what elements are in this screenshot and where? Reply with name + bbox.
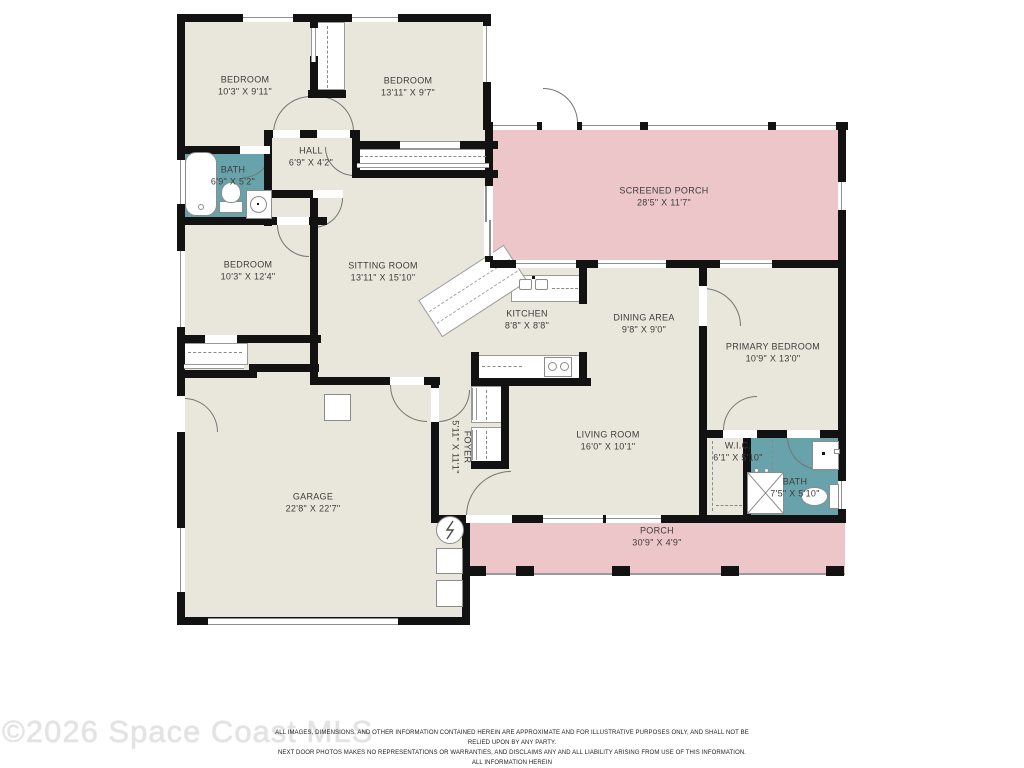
door-opening bbox=[699, 286, 707, 326]
room-dims: 28'5" X 11'7" bbox=[619, 197, 708, 209]
shower-knob-icon bbox=[754, 468, 759, 473]
door-arc bbox=[543, 88, 578, 123]
door-opening bbox=[177, 396, 185, 432]
door-opening bbox=[317, 130, 350, 138]
wall bbox=[310, 14, 318, 28]
appliance-fixture bbox=[436, 580, 463, 607]
window bbox=[720, 260, 772, 268]
room-dims: 5'11" X 11'1" bbox=[449, 420, 461, 473]
kitchen-sink-fixture bbox=[535, 279, 548, 290]
faucet-icon bbox=[834, 449, 840, 454]
disclaimer-text: ALL IMAGES, DIMENSIONS, AND OTHER INFORM… bbox=[272, 729, 752, 768]
wall bbox=[352, 170, 498, 178]
room-label-screened-porch: SCREENED PORCH 28'5" X 11'7" bbox=[619, 185, 708, 208]
closet-rod-line bbox=[552, 288, 578, 289]
room-label-kitchen: KITCHEN 8'8" X 8'8" bbox=[505, 308, 549, 331]
closet-rod-line bbox=[188, 352, 242, 353]
porch-pillar bbox=[516, 566, 534, 576]
room-label-foyer: FOYER 5'11" X 11'1" bbox=[449, 420, 472, 473]
sink-drain-icon bbox=[822, 452, 825, 455]
window bbox=[177, 160, 185, 204]
floor-plan-page: BEDROOM 10'3" X 9'11" BEDROOM 13'11" X 9… bbox=[0, 0, 1024, 768]
window bbox=[177, 528, 185, 592]
porch-pillar bbox=[826, 566, 844, 576]
sliding-door bbox=[484, 186, 493, 256]
room-label-wic: W.I.C. 6'1" X 5'10" bbox=[713, 440, 762, 463]
floor-plan: BEDROOM 10'3" X 9'11" BEDROOM 13'11" X 9… bbox=[0, 0, 1024, 768]
room-dims: 7'5" X 5'10" bbox=[770, 488, 819, 500]
closet-door-front bbox=[184, 364, 244, 369]
room-dims: 10'3" X 9'11" bbox=[218, 86, 272, 98]
wall bbox=[501, 386, 509, 468]
room-name: HALL bbox=[289, 145, 333, 157]
kitchen-sink-fixture bbox=[519, 279, 532, 290]
door-opening bbox=[431, 388, 439, 422]
appliance-fixture bbox=[436, 548, 463, 574]
room-dims: 13'11" X 15'10" bbox=[348, 272, 418, 284]
wall bbox=[177, 14, 491, 22]
door-opening bbox=[240, 146, 270, 154]
closet-rod-line bbox=[486, 431, 487, 459]
room-label-primary-bedroom: PRIMARY BEDROOM 10'9" X 13'0" bbox=[726, 341, 820, 364]
disclaimer-line: NEXT DOOR PHOTOS MAKES NO REPRESENTATION… bbox=[272, 749, 752, 768]
room-dims: 8'8" X 8'8" bbox=[505, 320, 549, 332]
porch-pillar bbox=[612, 566, 630, 576]
sink-drain-icon bbox=[257, 203, 259, 205]
window bbox=[543, 515, 603, 523]
window bbox=[776, 122, 836, 130]
closet-rod-line bbox=[772, 440, 773, 470]
room-label-bath-1: BATH 6'9" X 5'2" bbox=[211, 164, 255, 187]
door-opening bbox=[466, 515, 512, 523]
shower-knob-icon bbox=[764, 468, 769, 473]
room-dims: 22'8" X 22'7" bbox=[286, 503, 341, 515]
room-dims: 30'9" X 4'9" bbox=[632, 537, 681, 549]
room-dims: 6'9" X 5'2" bbox=[211, 176, 255, 188]
door-opening bbox=[723, 430, 757, 438]
closet-door-front bbox=[400, 141, 460, 149]
closet-rod-line bbox=[482, 366, 522, 367]
room-name: LIVING ROOM bbox=[576, 429, 639, 441]
room-label-bath-2: BATH 7'5" X 5'10" bbox=[770, 476, 819, 499]
door-opening bbox=[205, 335, 237, 343]
room-label-dining-area: DINING AREA 9'8" X 9'0" bbox=[613, 312, 674, 335]
stove-burner-icon bbox=[560, 362, 569, 371]
stove-burner-icon bbox=[548, 362, 557, 371]
room-dims: 16'0" X 10'1" bbox=[576, 441, 639, 453]
wall bbox=[249, 364, 319, 372]
wall bbox=[579, 352, 587, 386]
porch-pillar bbox=[468, 566, 486, 576]
room-name: GARAGE bbox=[286, 491, 341, 503]
closet-door-front bbox=[472, 388, 477, 420]
room-label-bedroom-1: BEDROOM 10'3" X 9'11" bbox=[218, 74, 272, 97]
water-heater-bolt-icon bbox=[437, 517, 463, 543]
room-dims: 6'1" X 5'10" bbox=[713, 452, 762, 464]
window bbox=[243, 14, 293, 22]
water-heater-fixture bbox=[436, 516, 464, 544]
wall bbox=[268, 190, 316, 198]
faucet-icon bbox=[532, 276, 535, 279]
room-dims: 6'9" X 4'2" bbox=[289, 157, 333, 169]
closet-rod-line bbox=[360, 156, 486, 157]
window bbox=[177, 251, 185, 327]
room-name: KITCHEN bbox=[505, 308, 549, 320]
bathtub-drain-icon bbox=[198, 204, 204, 210]
wall bbox=[308, 90, 346, 98]
window bbox=[606, 515, 661, 523]
door-opening bbox=[390, 377, 424, 385]
wall bbox=[310, 190, 318, 385]
closet-door-front bbox=[311, 28, 316, 62]
window bbox=[516, 260, 576, 268]
closet-door-front bbox=[357, 163, 489, 168]
wall bbox=[471, 461, 509, 469]
room-label-bedroom-2: BEDROOM 13'11" X 9'7" bbox=[381, 75, 435, 98]
room-label-garage: GARAGE 22'8" X 22'7" bbox=[286, 491, 341, 514]
window bbox=[838, 182, 846, 210]
porch-pillar bbox=[721, 566, 739, 576]
room-name: SITTING ROOM bbox=[348, 260, 418, 272]
window bbox=[493, 122, 537, 130]
room-name: BATH bbox=[770, 476, 819, 488]
closet-rod-line bbox=[327, 26, 328, 88]
wall bbox=[471, 378, 591, 386]
wall bbox=[177, 335, 321, 343]
room-name: FOYER bbox=[461, 420, 473, 473]
room-name: SCREENED PORCH bbox=[619, 185, 708, 197]
window bbox=[582, 122, 640, 130]
closet-rod-line bbox=[486, 390, 487, 420]
toilet-tank-fixture bbox=[829, 484, 839, 509]
room-label-bedroom-3: BEDROOM 10'3" X 12'4" bbox=[221, 259, 276, 282]
room-dims: 13'11" X 9'7" bbox=[381, 87, 435, 99]
room-dims: 9'8" X 9'0" bbox=[613, 324, 674, 336]
sink-vanity-fixture bbox=[812, 441, 839, 470]
room-name: BEDROOM bbox=[221, 259, 276, 271]
wall bbox=[579, 260, 587, 304]
room-name: BATH bbox=[211, 164, 255, 176]
room-name: DINING AREA bbox=[613, 312, 674, 324]
room-name: W.I.C. bbox=[713, 440, 762, 452]
window bbox=[648, 122, 768, 130]
door-opening bbox=[542, 122, 577, 130]
room-name: PRIMARY BEDROOM bbox=[726, 341, 820, 353]
window bbox=[352, 14, 398, 22]
door-opening bbox=[273, 130, 300, 138]
room-label-hall: HALL 6'9" X 4'2" bbox=[289, 145, 333, 168]
room-dims: 10'3" X 12'4" bbox=[221, 271, 276, 283]
window bbox=[598, 260, 666, 268]
closet bbox=[315, 22, 345, 90]
closet bbox=[184, 343, 248, 365]
door-opening bbox=[313, 190, 343, 198]
closet-door-front bbox=[472, 430, 477, 460]
room-name: PORCH bbox=[632, 525, 681, 537]
garage-door-opening bbox=[208, 618, 398, 625]
room-name: BEDROOM bbox=[218, 74, 272, 86]
wall bbox=[177, 370, 257, 378]
room-label-porch: PORCH 30'9" X 4'9" bbox=[632, 525, 681, 548]
door-opening bbox=[277, 217, 309, 225]
door-opening bbox=[787, 430, 820, 438]
disclaimer-line: ALL IMAGES, DIMENSIONS, AND OTHER INFORM… bbox=[272, 729, 752, 749]
room-name: BEDROOM bbox=[381, 75, 435, 87]
room-dims: 10'9" X 13'0" bbox=[726, 353, 820, 365]
closet-rod-line bbox=[716, 505, 742, 506]
window bbox=[838, 481, 846, 509]
room-label-sitting-room: SITTING ROOM 13'11" X 15'10" bbox=[348, 260, 418, 283]
window bbox=[483, 26, 491, 82]
garage-post-fixture bbox=[324, 394, 351, 421]
room-label-living-room: LIVING ROOM 16'0" X 10'1" bbox=[576, 429, 639, 452]
